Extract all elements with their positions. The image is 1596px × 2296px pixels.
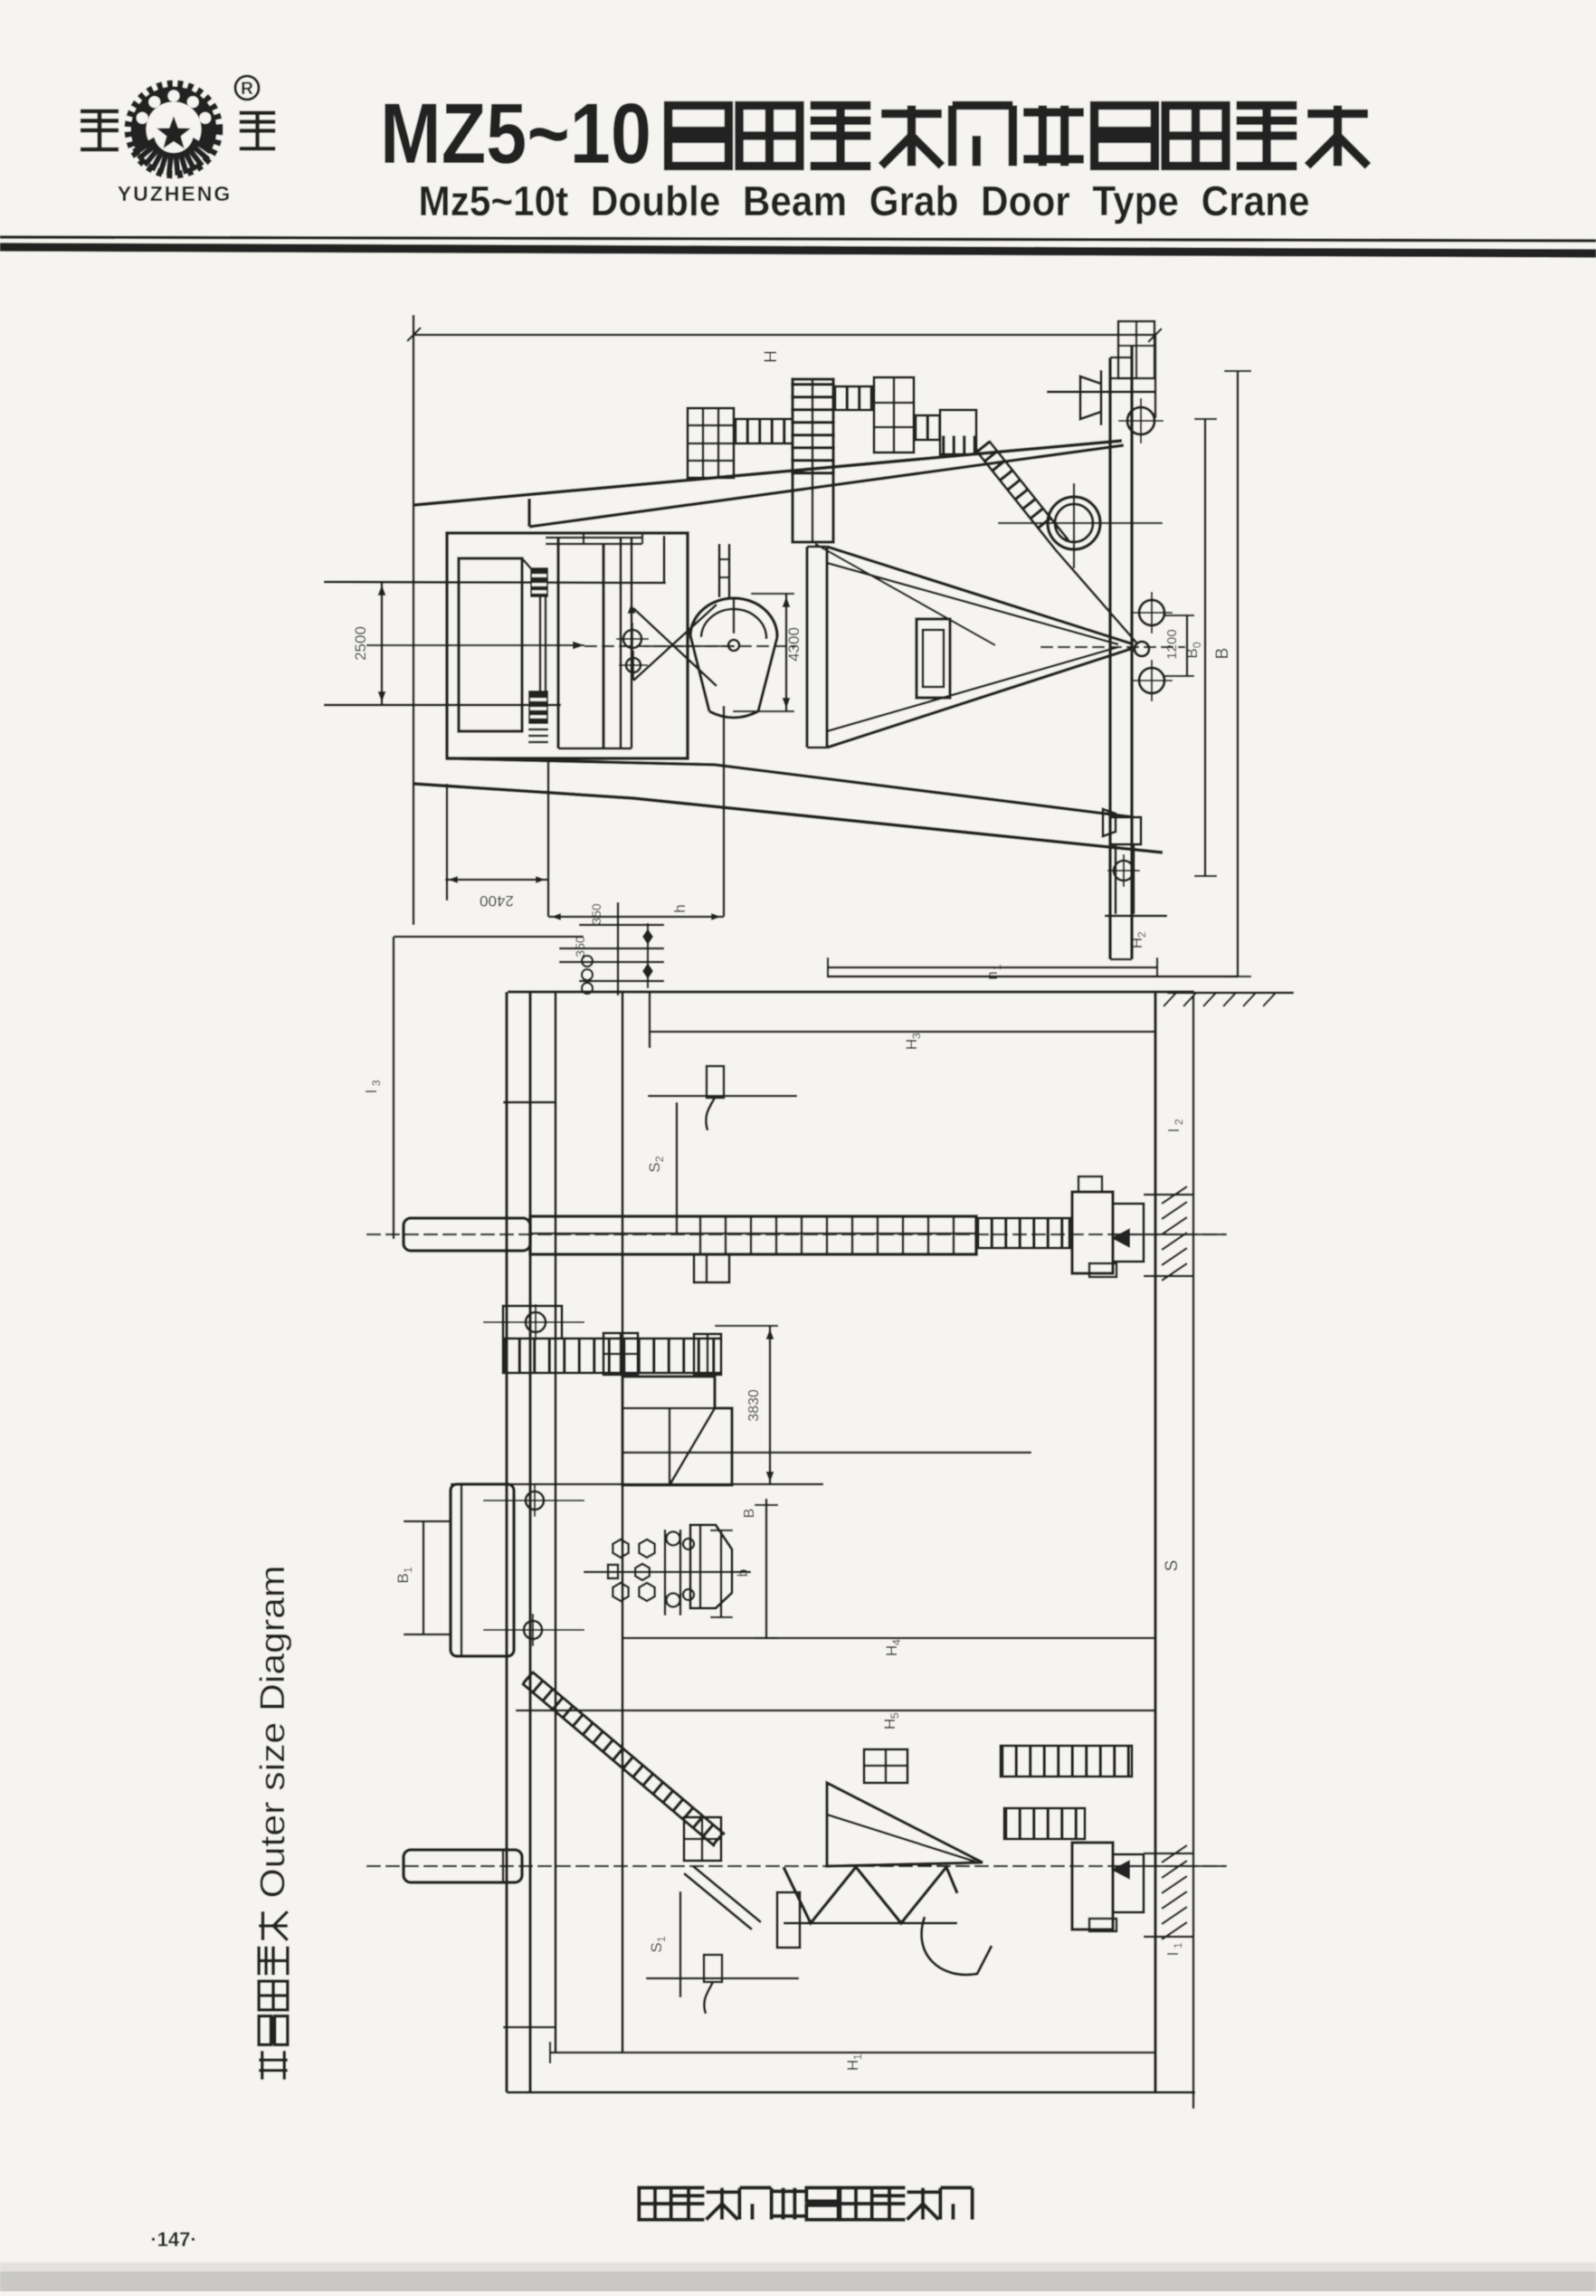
svg-text:3830: 3830: [746, 1389, 762, 1422]
svg-text:·147·: ·147·: [150, 2228, 196, 2251]
svg-text:R: R: [241, 80, 253, 99]
svg-text:H: H: [881, 1719, 898, 1729]
svg-text:S: S: [648, 1942, 665, 1952]
svg-text:B: B: [1183, 648, 1201, 658]
svg-text:H: H: [762, 350, 781, 363]
svg-text:350: 350: [589, 903, 603, 925]
svg-text:4: 4: [890, 1639, 903, 1645]
svg-text:350: 350: [573, 936, 587, 957]
svg-text:h: h: [671, 904, 689, 912]
svg-text:YUZHENG: YUZHENG: [118, 182, 232, 205]
svg-text:H: H: [1128, 938, 1145, 948]
svg-text:MZ5~10: MZ5~10: [380, 86, 651, 182]
svg-text:S: S: [646, 1162, 663, 1172]
svg-text:S: S: [1163, 1560, 1182, 1572]
svg-text:2400: 2400: [480, 892, 514, 910]
svg-text:2: 2: [1135, 931, 1148, 938]
svg-text:1: 1: [402, 1567, 414, 1573]
svg-text:l: l: [1164, 1952, 1182, 1956]
svg-text:4300: 4300: [785, 627, 803, 662]
svg-text:3: 3: [910, 1033, 923, 1039]
svg-text:0: 0: [1191, 642, 1203, 648]
svg-text:B: B: [1213, 648, 1232, 660]
svg-text:1: 1: [1172, 1942, 1184, 1948]
svg-text:Outer size Diagram: Outer size Diagram: [254, 1566, 292, 1899]
svg-text:3: 3: [370, 1080, 383, 1086]
svg-text:H: H: [883, 1645, 900, 1656]
svg-text:1: 1: [655, 1936, 668, 1942]
svg-text:2: 2: [653, 1156, 666, 1162]
svg-text:2500: 2500: [352, 626, 369, 661]
svg-text:l: l: [363, 1090, 380, 1093]
svg-text:5: 5: [888, 1712, 901, 1719]
svg-text:H: H: [903, 1039, 920, 1050]
svg-text:1: 1: [991, 964, 1003, 970]
svg-text:B: B: [394, 1573, 412, 1583]
svg-text:1200: 1200: [1164, 629, 1180, 659]
svg-text:2: 2: [1173, 1119, 1185, 1125]
svg-text:B: B: [742, 1509, 757, 1519]
svg-text:1: 1: [851, 2053, 864, 2060]
svg-text:l: l: [1165, 1129, 1183, 1132]
svg-text:Mz5~10t Double Beam Grab Door: Mz5~10t Double Beam Grab Door Type Crane: [419, 177, 1310, 224]
svg-text:H: H: [844, 2060, 861, 2071]
